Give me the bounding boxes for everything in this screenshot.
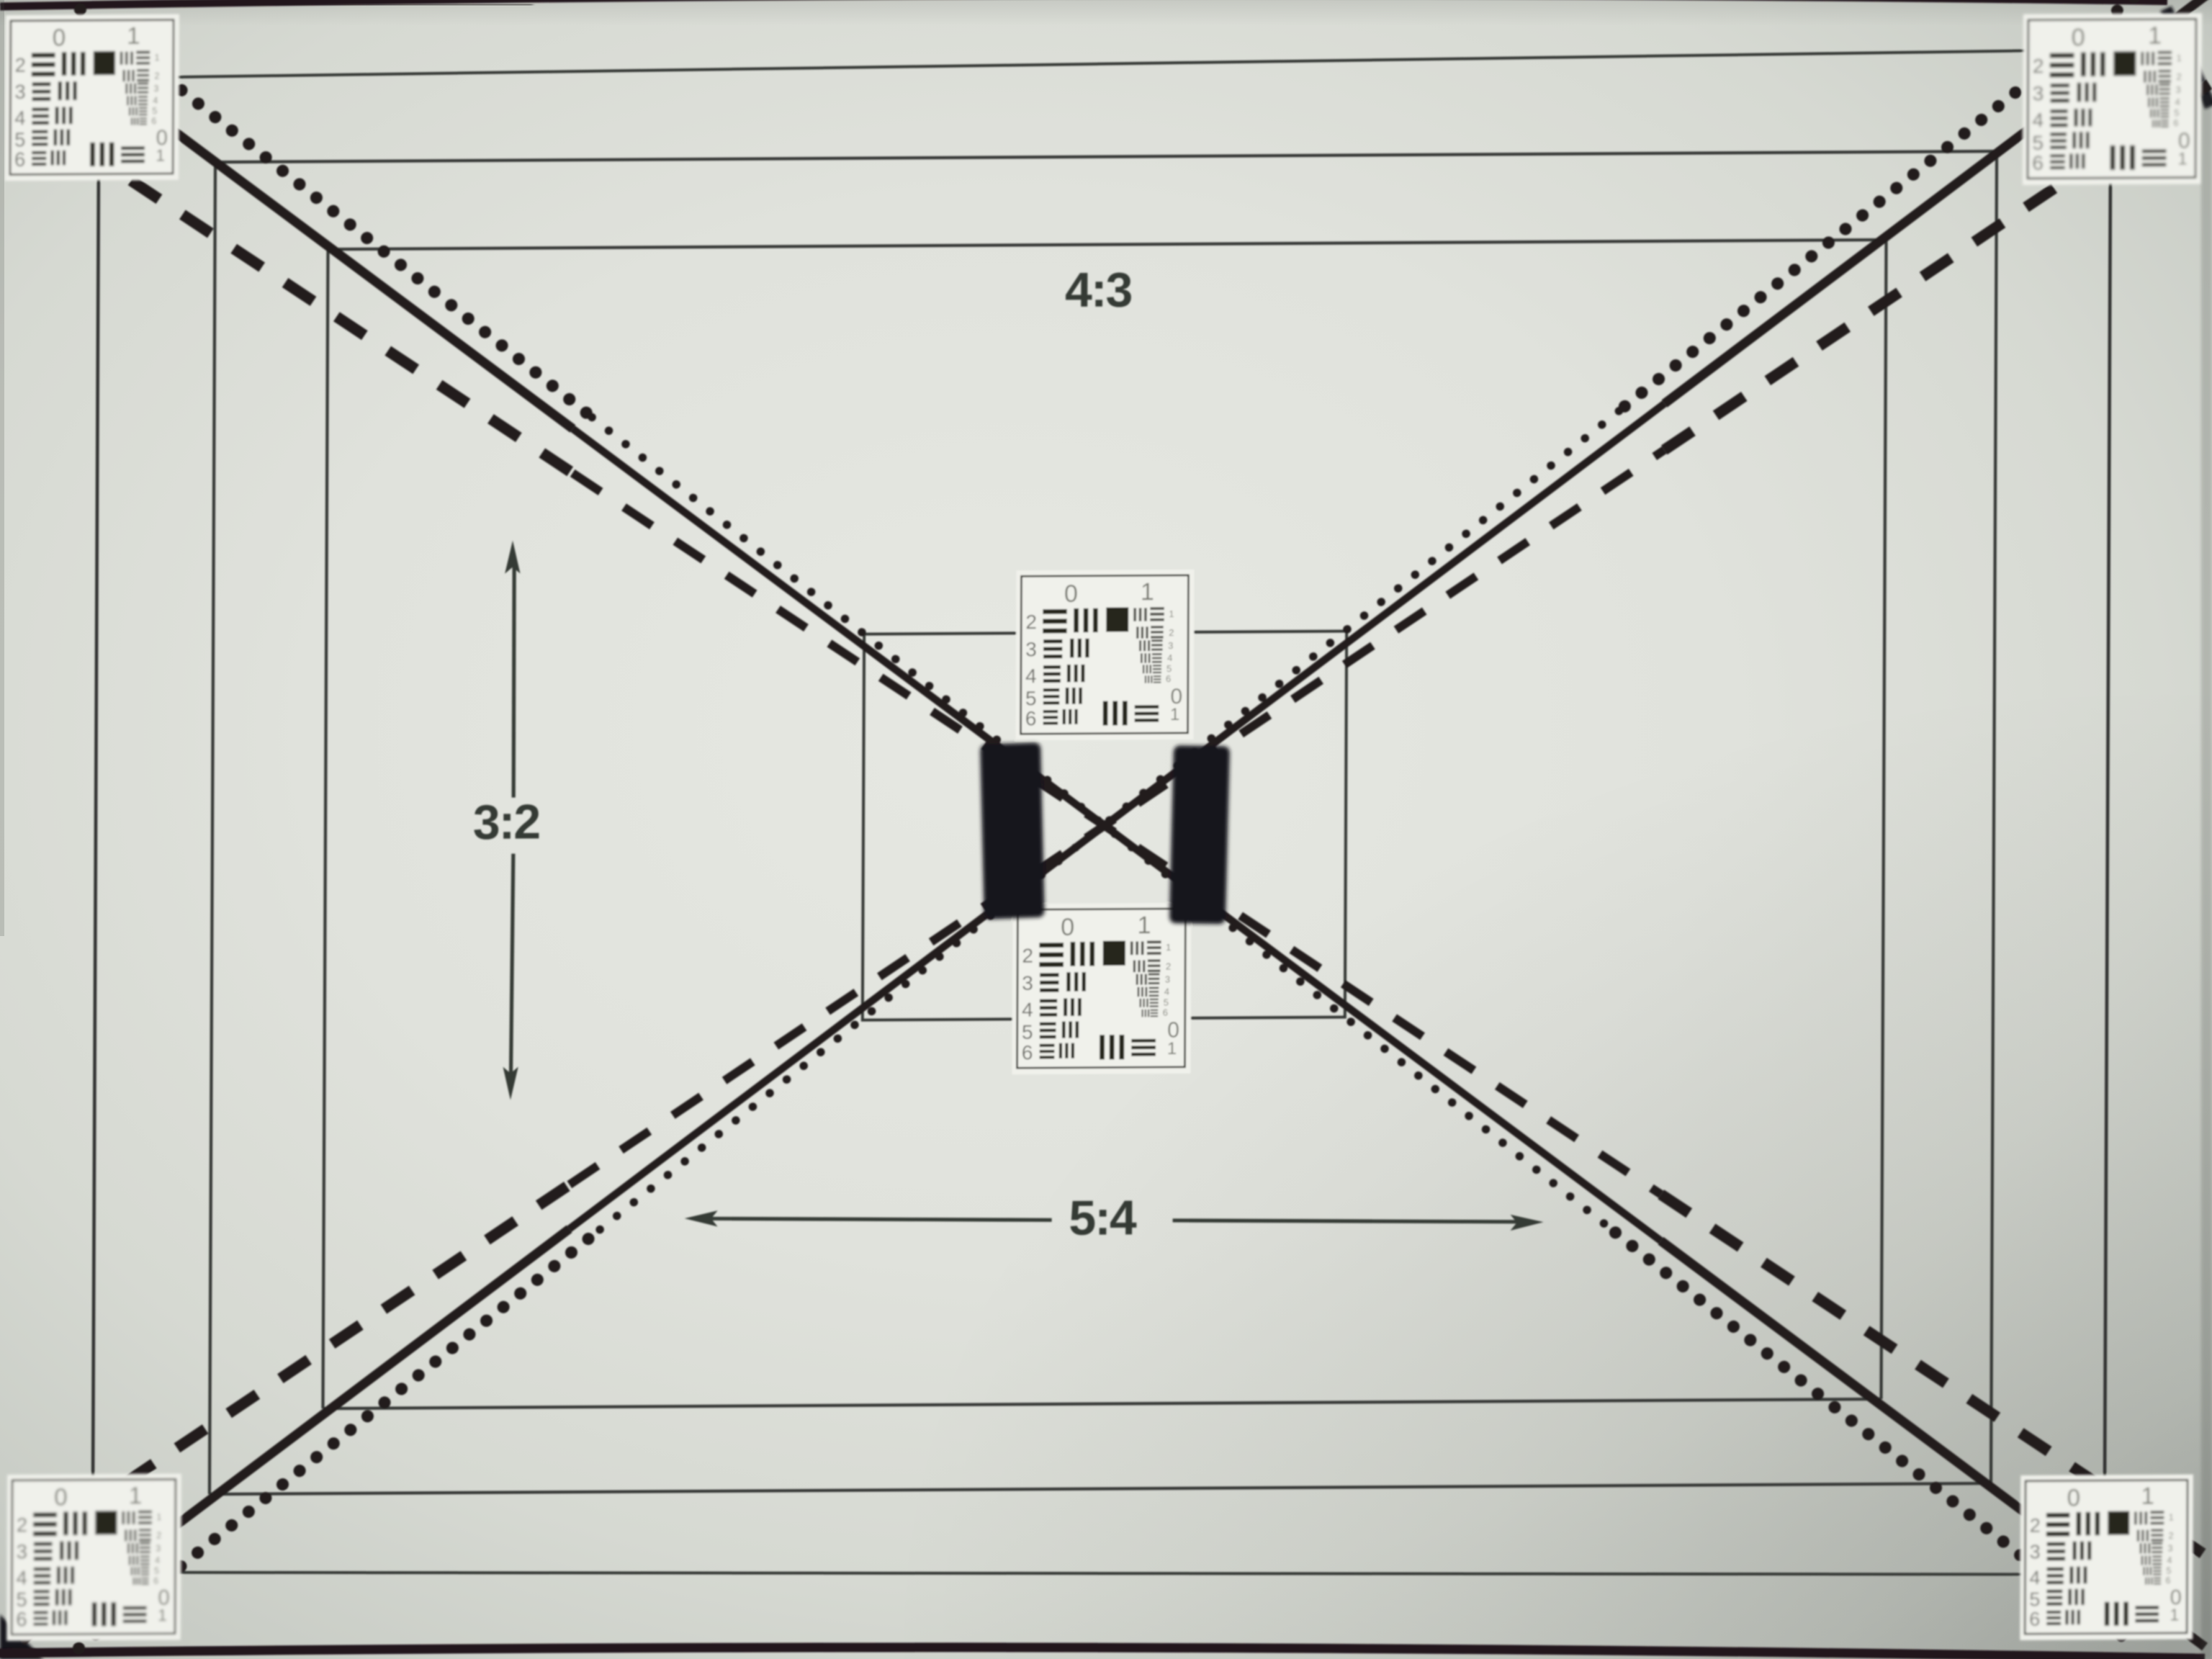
- svg-text:5:4: 5:4: [1069, 1190, 1137, 1246]
- svg-text:3:2: 3:2: [473, 794, 540, 850]
- svg-text:4:3: 4:3: [1065, 262, 1132, 318]
